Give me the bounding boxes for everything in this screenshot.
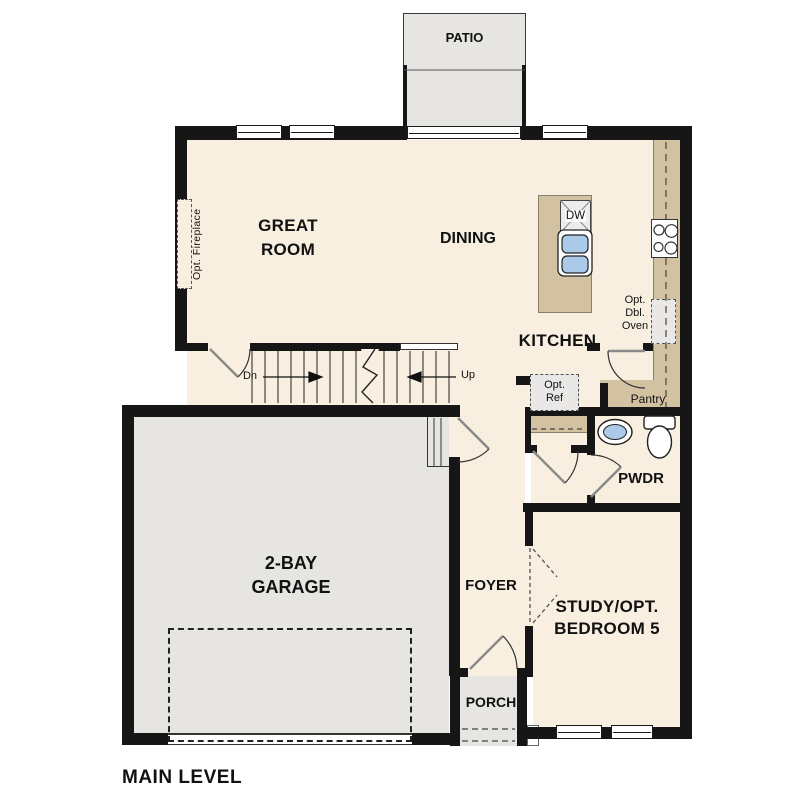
floor-powder — [595, 415, 680, 503]
room-label-pantry: Pantry — [608, 392, 688, 406]
room-label-study: STUDY/OPT. BEDROOM 5 — [537, 596, 677, 640]
stair-railing — [400, 343, 458, 350]
wall — [525, 503, 533, 546]
plan-title: MAIN LEVEL — [122, 766, 342, 790]
wall — [680, 126, 692, 739]
entry-closet-shelf — [531, 415, 587, 433]
room-label-garage: 2-BAY GARAGE — [216, 551, 366, 599]
wall — [523, 503, 692, 512]
wall — [122, 733, 168, 745]
annotation-stairs-up: Up — [456, 369, 480, 382]
annotation-opt-ref: Opt. Ref — [530, 379, 579, 405]
floor-nook — [531, 433, 587, 503]
window-icon — [556, 725, 602, 739]
wall — [122, 405, 460, 417]
room-label-patio: PATIO — [403, 30, 526, 46]
room-label-great-room: GREAT ROOM — [218, 214, 358, 262]
window-icon — [236, 125, 282, 139]
patio-lower — [403, 65, 526, 127]
wall — [122, 405, 134, 745]
floor-foyer-hall — [460, 407, 525, 668]
kitchen-wall-counter — [653, 140, 680, 407]
wall — [587, 416, 595, 455]
wall — [525, 727, 692, 739]
opt-fireplace-box — [177, 199, 192, 289]
window-icon — [611, 725, 653, 739]
room-label-porch: PORCH — [451, 694, 531, 712]
room-label-foyer: FOYER — [441, 577, 541, 596]
window-icon — [542, 125, 588, 139]
wall — [175, 343, 208, 351]
wall — [250, 343, 400, 351]
floor-stairs — [187, 343, 458, 407]
wall — [571, 445, 587, 453]
wall — [449, 457, 460, 676]
annotation-dishwasher: DW — [560, 209, 591, 223]
window-icon — [289, 125, 335, 139]
annotation-stairs-down: Dn — [238, 370, 262, 383]
wall — [643, 343, 653, 351]
room-label-powder: PWDR — [601, 470, 681, 489]
garage-door-dashed-outline — [168, 628, 412, 742]
room-label-dining: DINING — [408, 229, 528, 249]
cooktop-box — [651, 219, 678, 258]
room-label-kitchen: KITCHEN — [505, 330, 610, 351]
annotation-opt-fireplace: Opt. Fireplace — [191, 196, 209, 292]
floor-plan: PATIO GREAT ROOM DINING KITCHEN 2-BAY GA… — [0, 0, 810, 810]
annotation-opt-dbl-oven: Opt. Dbl. Oven — [614, 294, 656, 333]
wall — [531, 445, 537, 453]
wall — [600, 383, 608, 416]
garage-landing — [427, 417, 449, 467]
sliding-glass-door-icon — [407, 126, 521, 139]
